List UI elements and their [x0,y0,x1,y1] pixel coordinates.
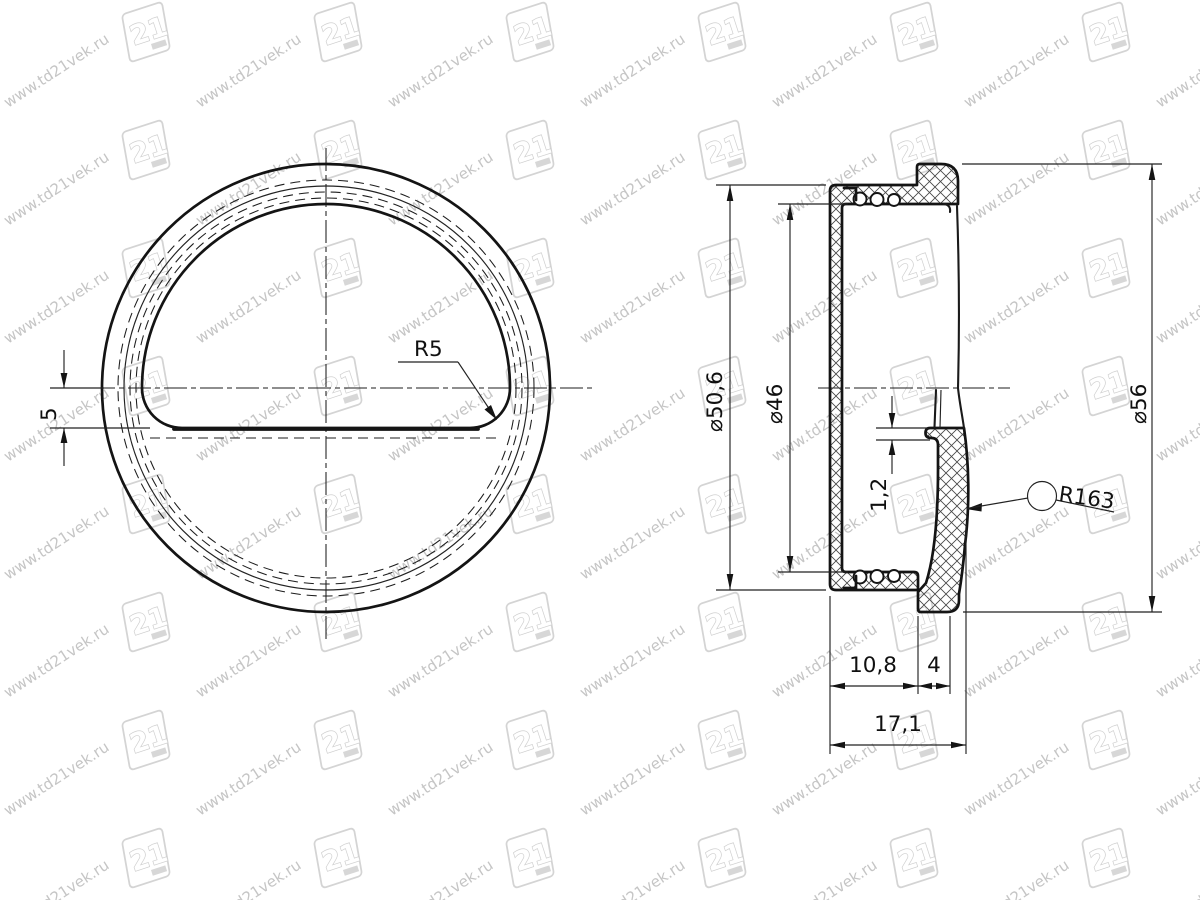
skirt-inner-edge [935,390,937,427]
drawing-page: www.td21vek.ru 21 [0,0,1200,900]
t12-text: 1,2 [867,478,892,512]
rim-bead [888,194,900,206]
w4-text: 4 [927,653,941,678]
technical-drawing: www.td21vek.ru 21 [0,0,1200,900]
r5-text: R5 [414,337,443,362]
w171-text: 17,1 [874,712,922,737]
dim-5-text: 5 [37,407,62,421]
rim-bead [888,570,900,582]
watermark-layer [0,0,1200,900]
d46-text: ⌀46 [763,384,788,424]
w108-text: 10,8 [849,653,897,678]
rim-bead [871,193,884,206]
d56-text: ⌀56 [1127,384,1152,424]
rim-bead [871,570,884,583]
d506-text: ⌀50,6 [703,371,728,432]
